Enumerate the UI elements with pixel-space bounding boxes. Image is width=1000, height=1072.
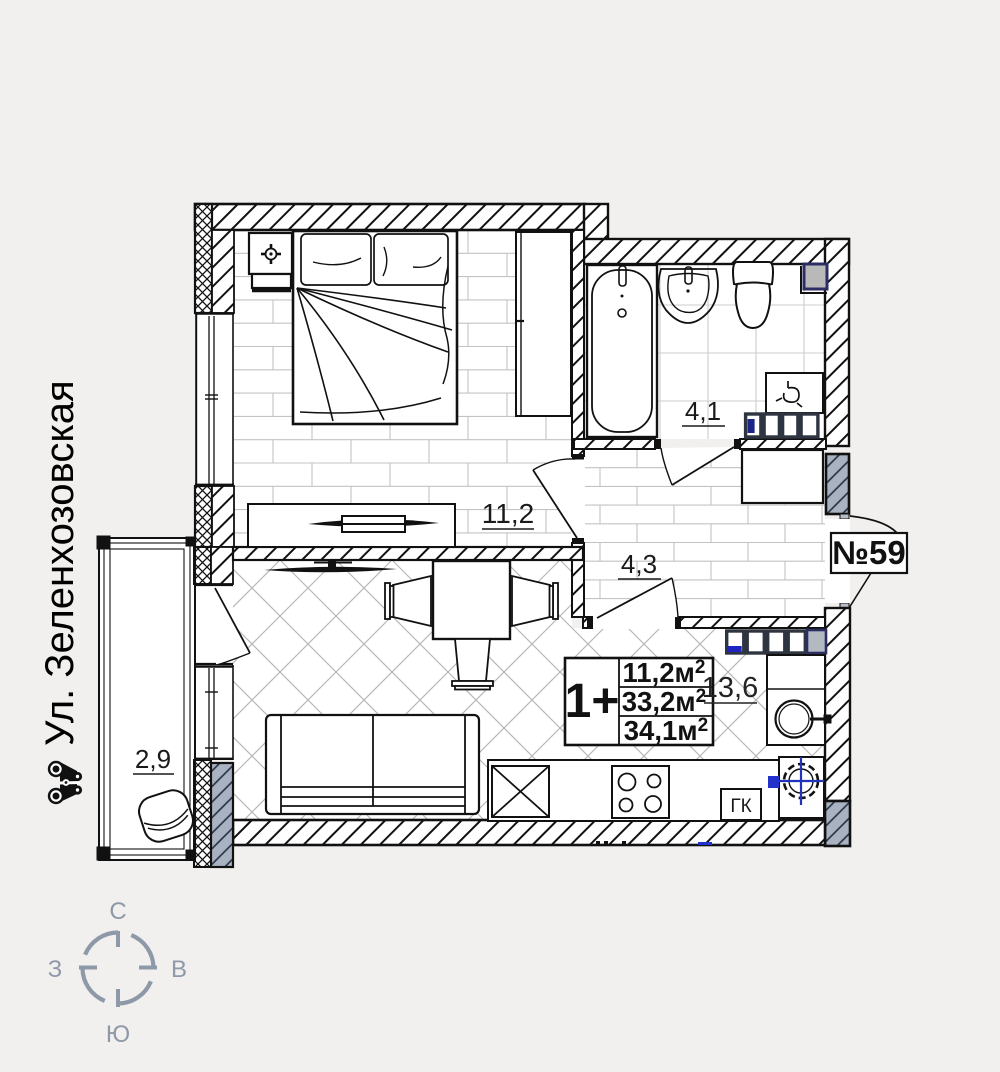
svg-text:С: С — [109, 898, 126, 925]
svg-text:№59: №59 — [832, 534, 906, 571]
svg-text:Ул. Зеленхозовская: Ул. Зеленхозовская — [38, 380, 82, 746]
svg-text:11,2: 11,2 — [482, 498, 534, 529]
svg-text:13,6: 13,6 — [702, 672, 758, 704]
svg-text:4,3: 4,3 — [621, 549, 657, 579]
svg-text:Ю: Ю — [106, 1021, 130, 1048]
svg-text:11,2м2: 11,2м2 — [623, 657, 706, 688]
svg-text:ГК: ГК — [730, 796, 751, 817]
svg-text:В: В — [171, 956, 187, 983]
svg-text:4,1: 4,1 — [685, 396, 721, 426]
svg-text:1+: 1+ — [565, 675, 620, 728]
svg-text:2,9: 2,9 — [135, 744, 171, 774]
svg-text:34,1м2: 34,1м2 — [624, 715, 708, 746]
svg-text:З: З — [48, 956, 63, 983]
svg-text:33,2м2: 33,2м2 — [622, 686, 706, 717]
